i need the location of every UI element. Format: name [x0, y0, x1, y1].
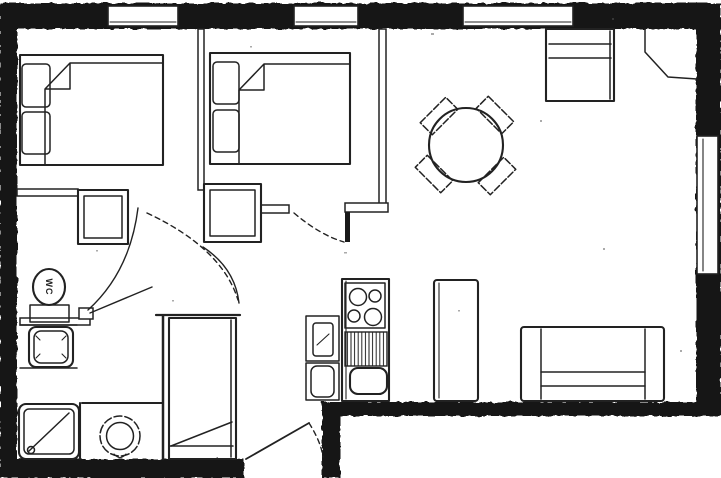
wall-bedroom2-south [345, 203, 388, 212]
window-living-room [463, 6, 573, 26]
wall-bottom-right [322, 402, 721, 416]
corner-flue [645, 29, 697, 79]
washbasin-corner-ticks [36, 336, 66, 358]
appliance-detail [317, 334, 329, 345]
washing-machine-drum [107, 423, 134, 450]
stove-burner [350, 289, 367, 306]
wall-bottom-left [0, 459, 244, 478]
sideboard [546, 29, 614, 101]
wall-kitchen-stub [345, 212, 350, 242]
exterior-walls [0, 3, 721, 478]
wall-entry-stub [322, 402, 340, 478]
door-swing-bedroom-2 [203, 247, 239, 303]
door-leaf-bathroom [90, 287, 152, 313]
dining-table [429, 108, 503, 182]
sofa-back-lines [541, 372, 645, 386]
dining-chair [478, 157, 515, 194]
stove-burner [365, 309, 382, 326]
door-swing-living-room [294, 213, 344, 242]
washing-machine-door-mark [114, 454, 126, 458]
blanket-fold [45, 63, 162, 165]
entry-door-leaf [246, 423, 309, 459]
hall-closet [169, 318, 236, 459]
entry-door-swing [309, 423, 323, 457]
bathroom: WC [19, 269, 140, 459]
sofa-armrests [541, 329, 645, 399]
wall-tab-bedroom2 [261, 205, 289, 213]
wall-bedroom2-living [379, 29, 386, 207]
washbasin-inner [34, 331, 68, 363]
appliance-inner [311, 366, 334, 397]
shower-diagonal [29, 413, 69, 451]
dining-chair [476, 96, 513, 133]
door-hinge-stub [79, 308, 93, 319]
bed-1 [20, 55, 163, 165]
bed-2 [210, 53, 350, 164]
wc-label: WC [44, 279, 54, 296]
dining-chair [420, 97, 457, 134]
pillow [213, 110, 239, 152]
tall-cabinet [434, 280, 478, 401]
sideboard-shelf-lines [549, 31, 611, 99]
window-bedroom-2 [294, 6, 358, 26]
wardrobe-bedroom-2 [204, 184, 261, 242]
bedroom-1 [20, 55, 163, 244]
pillow [213, 62, 239, 104]
wall-bedroom1-south [17, 189, 78, 196]
blanket-fold [239, 64, 349, 164]
sofa [521, 327, 664, 401]
counter-drainer [345, 332, 387, 366]
pillow [22, 112, 50, 154]
floor-plan: WC [0, 0, 721, 478]
wardrobe-inner [84, 196, 122, 238]
pillow [22, 64, 50, 107]
window-bedroom-1 [108, 6, 178, 26]
door-swing-bedroom-1 [88, 208, 138, 310]
stove-burner [369, 290, 381, 302]
dining-chair [415, 155, 452, 192]
wardrobe-bedroom-1 [78, 190, 128, 244]
hall-closet-diagonal [171, 422, 232, 446]
kitchen [306, 279, 389, 401]
stove-burner [348, 310, 360, 322]
floor-plan-drawing: WC [0, 0, 721, 478]
door-swing-hall [147, 213, 238, 300]
living-room [415, 29, 697, 401]
wall-bedroom-divider [198, 29, 204, 190]
window-right-wall [697, 136, 718, 274]
kitchen-sink [350, 368, 387, 394]
wall-left [0, 3, 17, 478]
wardrobe-inner [210, 190, 255, 236]
